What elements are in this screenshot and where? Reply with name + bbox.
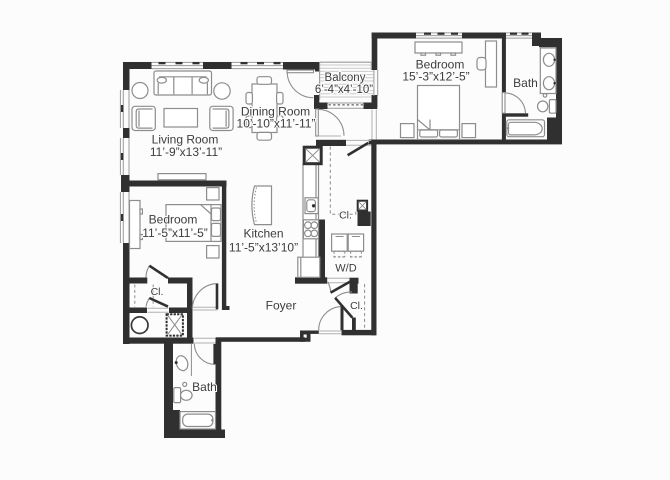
svg-text:Cl.: Cl. (151, 286, 164, 298)
svg-text:6’-4”x4’-10”: 6’-4”x4’-10” (315, 84, 373, 96)
svg-text:Bath: Bath (513, 76, 538, 90)
svg-text:10’-10”x11’-11”: 10’-10”x11’-11” (237, 116, 316, 130)
svg-text:11’-9”x13’-11”: 11’-9”x13’-11” (150, 145, 222, 159)
svg-text:Bath: Bath (192, 380, 217, 394)
svg-text:Bedroom: Bedroom (149, 213, 198, 227)
svg-text:11’-5”x11’-5”: 11’-5”x11’-5” (142, 226, 208, 240)
svg-text:Foyer: Foyer (266, 299, 297, 313)
svg-text:Cl.: Cl. (350, 300, 363, 312)
svg-text:11’-5”x13’10”: 11’-5”x13’10” (229, 240, 298, 254)
svg-text:Balcony: Balcony (325, 72, 366, 84)
svg-text:Kitchen: Kitchen (243, 227, 283, 241)
svg-text:W/D: W/D (335, 263, 356, 275)
svg-text:15’-3”x12’-5”: 15’-3”x12’-5” (402, 69, 469, 83)
svg-text:Cl.: Cl. (339, 210, 352, 222)
